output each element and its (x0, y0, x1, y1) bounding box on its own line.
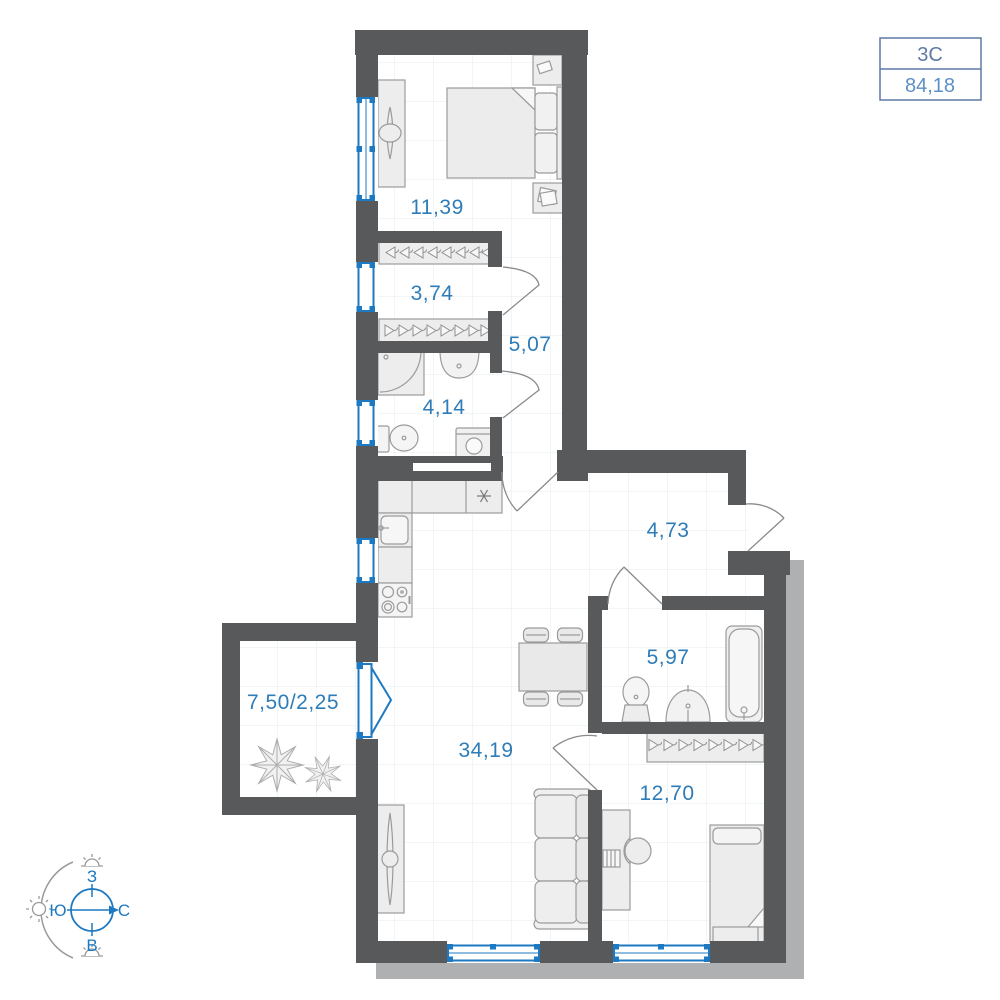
compass: З Ю С В (26, 854, 130, 958)
double-bed (447, 87, 562, 179)
kitchen-sink (378, 513, 412, 547)
compass-east-label: В (86, 936, 97, 955)
plan-area-label: 84,18 (905, 75, 955, 97)
wall-niche (413, 463, 491, 471)
stove (378, 583, 412, 617)
plant-large (251, 739, 303, 791)
room-label-bathroom-large: 5,97 (647, 646, 690, 669)
wardrobe-bottom-row (379, 319, 494, 342)
floor-balcony (240, 641, 360, 797)
bathtub (726, 626, 762, 722)
room-label-second-bedroom: 12,70 (639, 782, 694, 805)
single-bed (710, 825, 764, 945)
washing-machine (456, 428, 493, 458)
sunrise-icon-top (81, 854, 103, 866)
tv-stand (377, 805, 404, 913)
window-wardrobe (356, 262, 378, 312)
toilet-small-bath (377, 425, 418, 452)
plan-info-box: 3С 84,18 (880, 38, 981, 100)
room-label-bathroom-small: 4,14 (423, 396, 466, 419)
compass-west-label: З (87, 867, 97, 886)
kitchen-counter-2 (378, 547, 412, 583)
room-label-kitchen-living: 34,19 (458, 739, 513, 762)
dresser-mirror (378, 80, 405, 187)
nightstand-top (533, 55, 562, 85)
shower-tray (378, 349, 424, 395)
window-bathroom (356, 400, 378, 446)
plan-type-label: 3С (917, 44, 943, 66)
door-entrance (746, 504, 784, 551)
room-label-bedroom: 11,39 (410, 196, 464, 219)
desk-chair (624, 838, 651, 864)
floor-plan: 11,39 3,74 5,07 4,14 4,73 5,97 34,19 12,… (0, 0, 1000, 1000)
window-bedroom (356, 97, 378, 201)
compass-south-label: Ю (49, 901, 66, 920)
window-living (447, 943, 540, 963)
window-kitchen (356, 538, 378, 583)
nightstand-bottom (533, 183, 563, 213)
room-label-hallway: 4,73 (647, 519, 690, 542)
north-arrow (67, 906, 119, 915)
sofa (534, 789, 592, 929)
room-label-balcony: 7,50/2,25 (247, 691, 339, 714)
sun-icon (26, 896, 52, 922)
toilet-large-bath (622, 677, 650, 722)
floor-plan-page: 11,39 3,74 5,07 4,14 4,73 5,97 34,19 12,… (0, 0, 1000, 1000)
compass-north-label: С (118, 901, 130, 920)
room-label-wardrobe: 3,74 (411, 282, 454, 305)
wardrobe-top-row (379, 241, 495, 264)
window-second-bedroom (613, 943, 710, 963)
room-label-corridor: 5,07 (509, 333, 552, 356)
